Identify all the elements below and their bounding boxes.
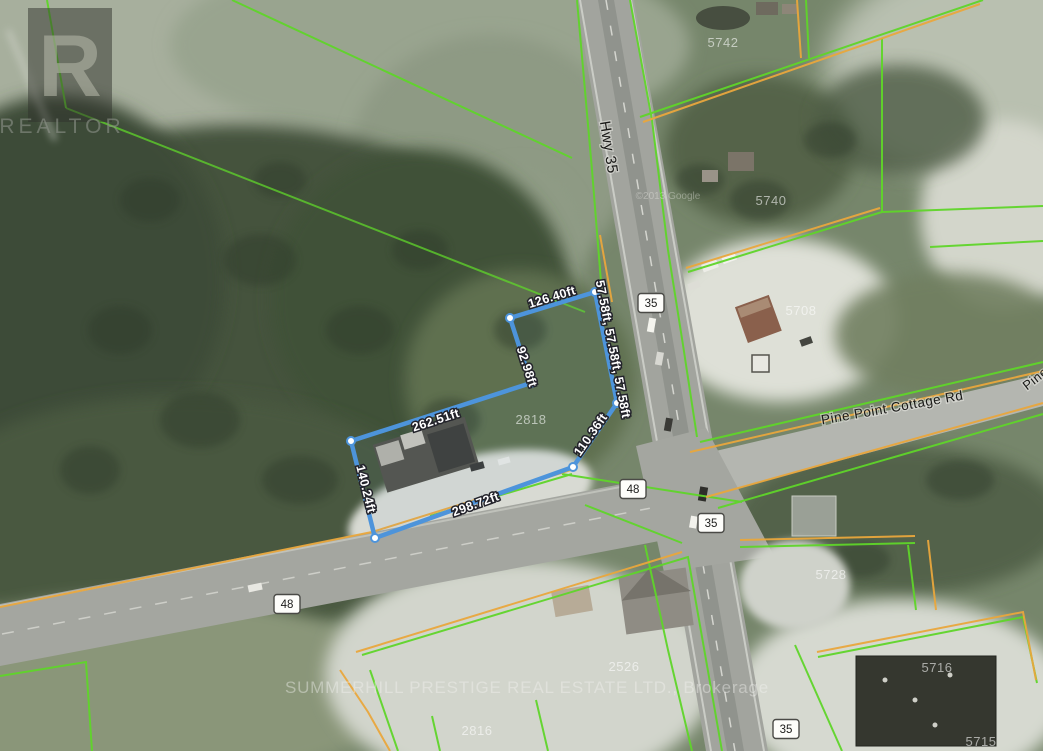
svg-text:35: 35 [780,724,793,736]
parcel-number-5715: 5715 [966,734,997,749]
route-shield-35-south: 35 [773,720,799,739]
realtor-logo-r: R [38,16,102,115]
brokerage-watermark: SUMMERHILL PRESTIGE REAL ESTATE LTD., Br… [285,678,769,697]
parcel-number-5740: 5740 [756,193,787,208]
svg-text:48: 48 [627,484,640,496]
svg-text:48: 48 [281,599,294,611]
route-shield-48-west: 48 [274,595,300,614]
parcel-number-5728: 5728 [816,567,847,582]
map-viewport[interactable]: 126.40ft 57.58ft, 57.58ft, 57.58ft 110.3… [0,0,1043,751]
route-shield-48-mid: 48 [620,480,646,499]
parcel-number-5716: 5716 [922,660,953,675]
satellite-map[interactable]: 126.40ft 57.58ft, 57.58ft, 57.58ft 110.3… [0,0,1043,751]
svg-text:35: 35 [645,298,658,310]
parcel-number-2816: 2816 [462,723,493,738]
route-shield-35-mid: 35 [698,514,724,533]
route-shield-35-north: 35 [638,294,664,313]
parcel-number-5742: 5742 [708,35,739,50]
parcel-number-2526: 2526 [609,659,640,674]
parcel-number-2818: 2818 [516,412,547,427]
realtor-logo-text: REALTOR [0,115,125,138]
parcel-number-5708: 5708 [786,303,817,318]
imagery-watermark: ©2013 Google [636,191,701,202]
svg-text:35: 35 [705,518,718,530]
